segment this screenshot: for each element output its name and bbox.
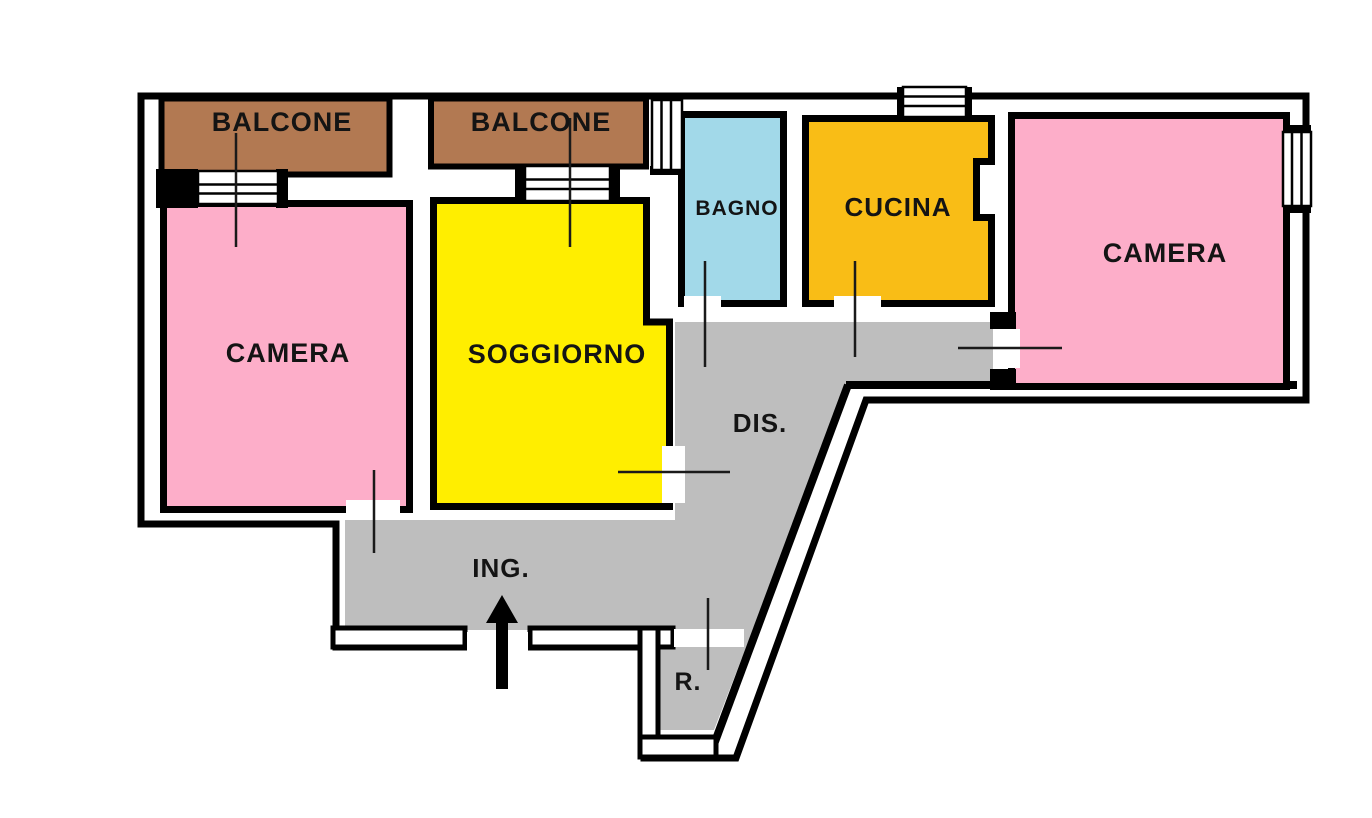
- window-frame: [1283, 132, 1311, 206]
- bedroom-right-door-jamb-top: [990, 312, 1016, 329]
- living-room-door-opening: [662, 446, 685, 503]
- balcony-center-label: BALCONE: [471, 107, 612, 137]
- floor-plan-drawing: BALCONE BALCONE CAMERA SOGGIORNO BAGNO C…: [0, 0, 1372, 818]
- storage-label: R.: [675, 668, 702, 696]
- bathroom-door-opening: [684, 296, 721, 311]
- window-balcony-center: [515, 164, 620, 203]
- window-frame: [903, 87, 966, 117]
- hallway-label: DIS.: [733, 408, 788, 438]
- window-frame: [525, 166, 610, 201]
- window-balcony-left: [156, 169, 288, 208]
- storage-south-wall: [640, 737, 716, 757]
- balcony-left-label: BALCONE: [212, 107, 353, 137]
- window-end-cap: [515, 164, 525, 203]
- window-bathroom: [650, 100, 685, 175]
- window-frame: [198, 171, 278, 204]
- bedroom-left-label: CAMERA: [226, 338, 351, 368]
- kitchen-door-opening: [834, 296, 881, 311]
- window-end-cap: [610, 164, 620, 203]
- window-kitchen: [897, 87, 972, 117]
- entry-wall-left: [333, 628, 465, 647]
- kitchen-label: CUCINA: [844, 192, 951, 222]
- window-bedroom-right: [1283, 125, 1311, 213]
- window-frame: [652, 100, 682, 170]
- window-wall-stub: [156, 169, 198, 208]
- bedroom-right-label: CAMERA: [1103, 238, 1228, 268]
- living-room-label: SOGGIORNO: [468, 339, 647, 369]
- bedroom-right-door-jamb-bottom: [990, 369, 1016, 390]
- bathroom-label: BAGNO: [695, 197, 778, 220]
- floor-plan-page: BALCONE BALCONE CAMERA SOGGIORNO BAGNO C…: [0, 0, 1372, 818]
- entry-label: ING.: [472, 553, 529, 583]
